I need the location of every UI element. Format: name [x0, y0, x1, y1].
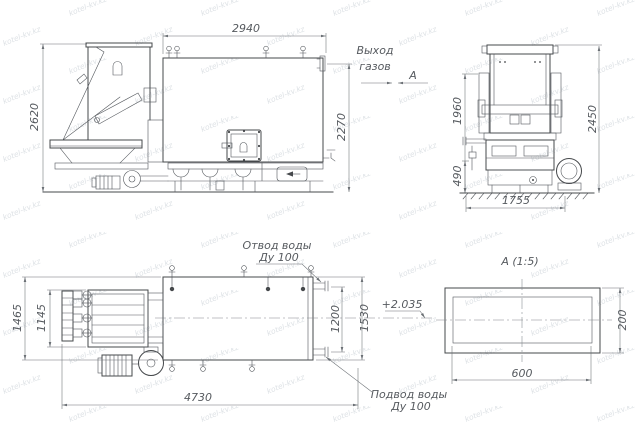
dim-height-right: 2270	[335, 113, 348, 141]
dim-base-height: 490	[451, 166, 464, 187]
dim-pipe-span: 1200	[329, 305, 342, 333]
water-outlet-label-line2: Ду 100	[258, 251, 299, 264]
drawing-sheet: kotel-kv.kz kotel-kv.kz	[0, 0, 644, 430]
level-mark-value: +2.035	[382, 298, 423, 311]
dim-width-bottom: 1755	[502, 194, 530, 207]
dim-height: 200	[616, 310, 629, 331]
dim-length-bottom: 4730	[184, 391, 212, 404]
dim-width-inner: 1145	[35, 304, 48, 332]
technical-drawing: kotel-kv.kz kotel-kv.kz	[0, 0, 644, 430]
dim-width-right: 1530	[358, 304, 371, 332]
section-title: А (1:5)	[500, 255, 538, 268]
gas-outlet-label-line1: Выход	[356, 44, 393, 57]
dim-width-top: 2940	[232, 22, 260, 35]
dim-height-right: 2450	[586, 105, 599, 133]
dim-height-left: 1960	[451, 97, 464, 125]
watermark-layer	[0, 0, 644, 430]
gas-outlet-label-line2: газов	[359, 60, 391, 73]
dim-width-outer: 1465	[11, 304, 24, 332]
dim-width: 600	[512, 367, 533, 380]
section-marker-letter: А	[408, 69, 417, 82]
dim-height-left: 2620	[28, 103, 41, 131]
water-inlet-label-line2: Ду 100	[390, 400, 431, 413]
